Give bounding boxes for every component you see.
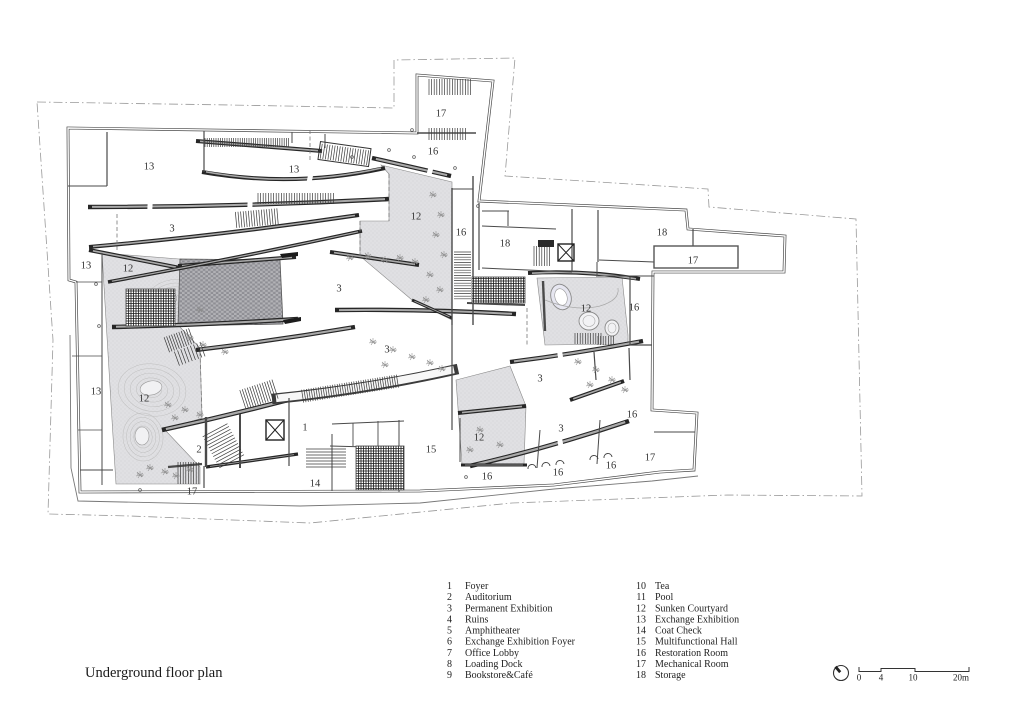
svg-text:Restoration Room: Restoration Room — [655, 648, 728, 659]
svg-text:18: 18 — [500, 239, 511, 250]
svg-text:13: 13 — [81, 261, 92, 272]
svg-text:4: 4 — [879, 673, 884, 683]
svg-text:2: 2 — [447, 592, 452, 603]
svg-text:Office Lobby: Office Lobby — [465, 648, 519, 659]
svg-text:12: 12 — [411, 212, 422, 223]
svg-text:17: 17 — [436, 109, 447, 120]
svg-text:17: 17 — [688, 256, 699, 267]
svg-text:9: 9 — [447, 670, 452, 681]
svg-text:1: 1 — [302, 423, 307, 434]
svg-text:15: 15 — [636, 637, 646, 648]
svg-text:Ruins: Ruins — [465, 614, 488, 625]
svg-text:Multifunctional Hall: Multifunctional Hall — [655, 637, 738, 648]
svg-text:13: 13 — [91, 387, 102, 398]
svg-text:16: 16 — [606, 461, 617, 472]
svg-text:11: 11 — [636, 592, 646, 603]
svg-text:17: 17 — [187, 487, 198, 498]
svg-text:17: 17 — [645, 453, 656, 464]
svg-text:13: 13 — [289, 165, 300, 176]
svg-text:0: 0 — [857, 673, 862, 683]
svg-text:6: 6 — [447, 637, 452, 648]
svg-text:Permanent Exhibition: Permanent Exhibition — [465, 603, 553, 614]
svg-text:12: 12 — [636, 603, 646, 614]
svg-text:5: 5 — [447, 626, 452, 637]
svg-text:Coat Check: Coat Check — [655, 626, 702, 637]
svg-text:16: 16 — [428, 147, 439, 158]
svg-text:13: 13 — [144, 162, 155, 173]
svg-text:Exchange Exhibition Foyer: Exchange Exhibition Foyer — [465, 637, 576, 648]
svg-text:7: 7 — [447, 648, 452, 659]
svg-text:Mechanical Room: Mechanical Room — [655, 659, 729, 670]
svg-text:16: 16 — [629, 303, 640, 314]
svg-text:16: 16 — [636, 648, 646, 659]
svg-text:Exchange Exhibition: Exchange Exhibition — [655, 614, 739, 625]
svg-text:8: 8 — [447, 659, 452, 670]
svg-text:16: 16 — [482, 472, 493, 483]
svg-text:3: 3 — [537, 374, 542, 385]
svg-text:Bookstore&Café: Bookstore&Café — [465, 670, 533, 681]
svg-text:17: 17 — [636, 659, 646, 670]
svg-text:14: 14 — [636, 626, 646, 637]
svg-text:Pool: Pool — [655, 592, 674, 603]
svg-text:18: 18 — [636, 670, 646, 681]
svg-text:20m: 20m — [953, 673, 969, 683]
svg-text:12: 12 — [139, 394, 150, 405]
svg-text:Underground floor plan: Underground floor plan — [85, 665, 223, 681]
svg-text:Loading Dock: Loading Dock — [465, 659, 523, 670]
svg-text:12: 12 — [474, 433, 485, 444]
svg-text:12: 12 — [581, 304, 592, 315]
svg-text:Sunken Courtyard: Sunken Courtyard — [655, 603, 728, 614]
svg-text:1: 1 — [447, 581, 452, 592]
svg-text:3: 3 — [169, 224, 174, 235]
svg-text:14: 14 — [310, 479, 321, 490]
svg-text:3: 3 — [336, 284, 341, 295]
svg-text:16: 16 — [553, 468, 564, 479]
svg-text:Tea: Tea — [655, 581, 670, 592]
svg-text:15: 15 — [426, 445, 437, 456]
svg-text:18: 18 — [657, 228, 668, 239]
svg-text:4: 4 — [447, 614, 452, 625]
svg-text:Auditorium: Auditorium — [465, 592, 512, 603]
svg-text:10: 10 — [636, 581, 646, 592]
svg-text:10: 10 — [909, 673, 919, 683]
svg-text:3: 3 — [558, 424, 563, 435]
svg-text:Storage: Storage — [655, 670, 686, 681]
svg-text:3: 3 — [384, 345, 389, 356]
svg-text:3: 3 — [447, 603, 452, 614]
svg-text:16: 16 — [456, 228, 467, 239]
svg-text:13: 13 — [636, 614, 646, 625]
svg-text:Foyer: Foyer — [465, 581, 489, 592]
svg-text:2: 2 — [196, 445, 201, 456]
svg-text:16: 16 — [627, 410, 638, 421]
svg-text:12: 12 — [123, 264, 134, 275]
svg-text:Amphitheater: Amphitheater — [465, 626, 521, 637]
